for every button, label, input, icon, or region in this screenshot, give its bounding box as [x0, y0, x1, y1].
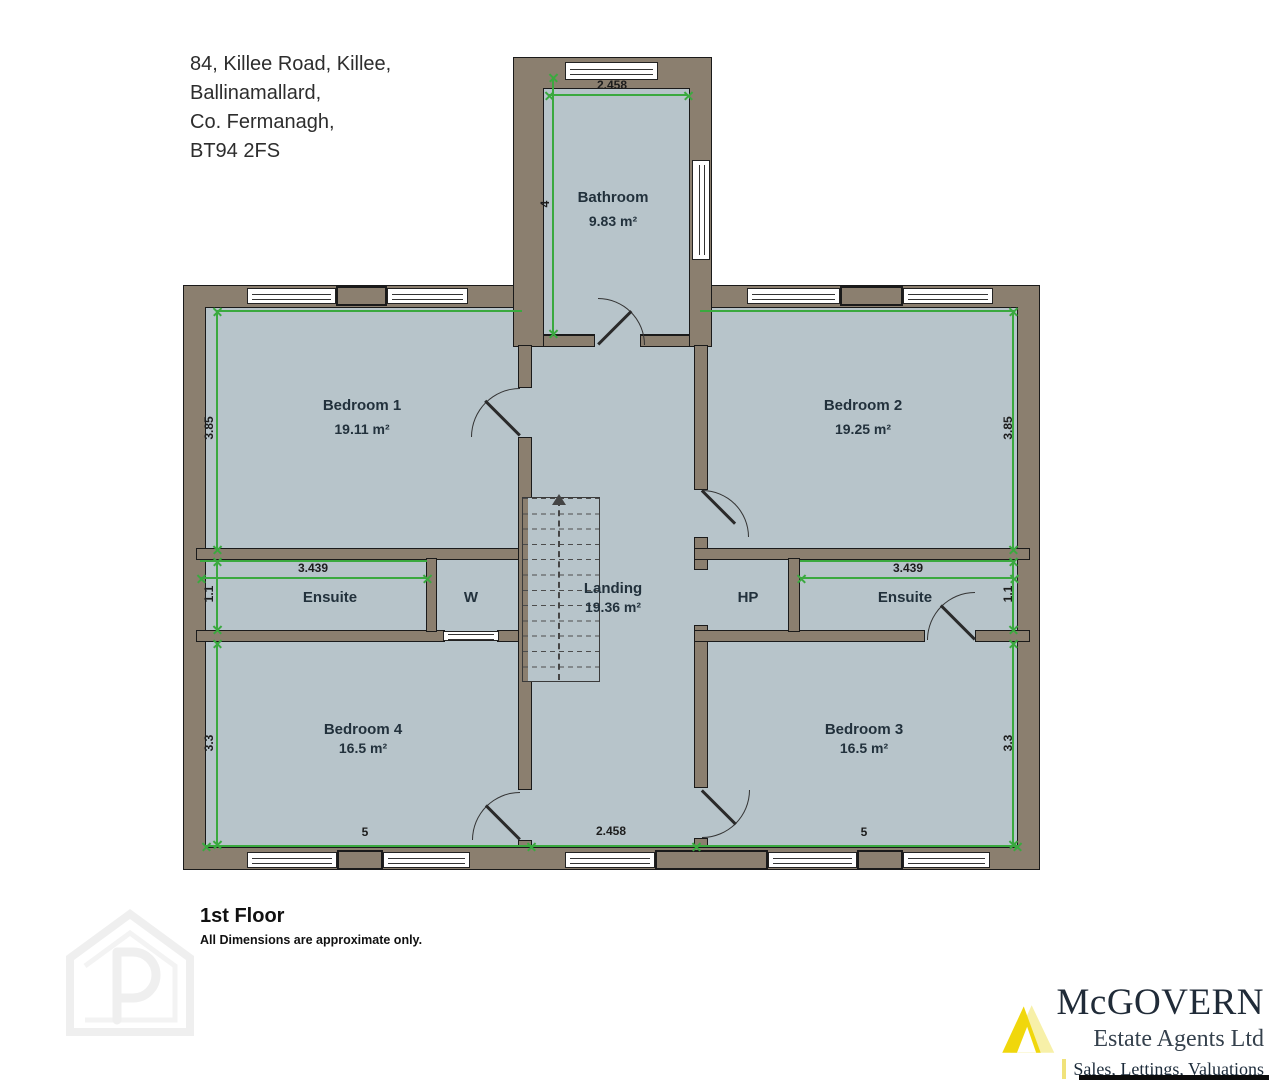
dim-line-bathroom-width [549, 94, 688, 96]
staircase-up-arrow-icon [552, 494, 566, 505]
property-address: 84, Killee Road, Killee, Ballinamallard,… [190, 50, 391, 166]
dim-marker [796, 573, 807, 584]
bathroom-label: Bathroom 9.83 m² [578, 190, 649, 228]
bedroom3-window-2 [903, 852, 990, 868]
room-name: Ensuite [303, 590, 357, 605]
dim-marker [212, 638, 223, 649]
landing-window-pier [655, 850, 768, 870]
bedroom3-window-pier [857, 850, 903, 870]
address-line-2: Ballinamallard, [190, 79, 391, 108]
bedroom4-window-2 [383, 852, 470, 868]
dim-line-ensuite-left-depth [216, 560, 218, 630]
dim-label-ensuite-right-width: 3.439 [893, 562, 923, 574]
dim-label-ensuite-left-width: 3.439 [298, 562, 328, 574]
dim-label-bedroom1-depth: 3.85 [203, 416, 215, 439]
room-name: Landing [584, 581, 642, 596]
room-area: 19.36 m² [584, 600, 642, 614]
dim-marker [201, 841, 212, 852]
room-area: 9.83 m² [578, 214, 649, 228]
logo-subtitle: Estate Agents Ltd [1057, 1026, 1264, 1053]
bedroom2-label: Bedroom 2 19.25 m² [824, 398, 902, 436]
dimensions-disclaimer: All Dimensions are approximate only. [200, 933, 422, 947]
address-line-1: 84, Killee Road, Killee, [190, 50, 391, 79]
dim-marker [422, 573, 433, 584]
dim-marker [548, 328, 559, 339]
dim-marker [196, 573, 207, 584]
bedroom1-window-pier [336, 286, 387, 306]
dim-marker [1008, 638, 1019, 649]
dim-marker [1009, 573, 1020, 584]
dim-marker [544, 90, 555, 101]
dim-marker [212, 839, 223, 850]
bedroom3-window-1 [768, 852, 857, 868]
address-line-3: Co. Fermanagh, [190, 108, 391, 137]
dim-label-bedroom4-width: 5 [362, 826, 369, 838]
bathroom-window-right [692, 160, 710, 260]
dim-label-bedroom4-depth: 3.3 [203, 735, 215, 752]
wall-ensuite-wardrobe-divider [426, 558, 437, 632]
wall-ensuite-bedroom3-right [975, 630, 1030, 642]
address-line-4: BT94 2FS [190, 137, 391, 166]
dim-label-hall-width: 2.458 [596, 825, 626, 837]
room-name: Bedroom 3 [825, 722, 903, 737]
bedroom4-window-pier [337, 850, 383, 870]
bathroom-bottom-wall-right [640, 335, 690, 347]
bedroom1-label: Bedroom 1 19.11 m² [323, 398, 401, 436]
floor-title: 1st Floor [200, 905, 284, 928]
bedroom1-window-1 [247, 288, 336, 304]
room-name: W [464, 590, 478, 605]
wardrobe-opening [443, 631, 499, 641]
room-name: Bathroom [578, 190, 649, 205]
wall-landing-right-3 [694, 625, 708, 788]
staircase-direction-line [558, 500, 560, 680]
room-area: 19.25 m² [824, 422, 902, 436]
dim-marker [1012, 841, 1023, 852]
dim-marker [1008, 556, 1019, 567]
room-area: 16.5 m² [825, 741, 903, 755]
floorplan-page: 84, Killee Road, Killee, Ballinamallard,… [0, 0, 1269, 1080]
ensuite-left-label: Ensuite [303, 590, 357, 605]
dim-label-bedroom2-depth: 3.85 [1002, 416, 1014, 439]
dim-marker [1008, 544, 1019, 555]
dim-line-bedroom1-depth [216, 310, 218, 550]
landing-label: Landing 19.36 m² [584, 581, 642, 614]
wall-landing-left-1 [518, 345, 532, 388]
wall-hp-ensuite-divider [788, 558, 800, 632]
dim-label-ensuite-right-depth: 1.1 [1002, 586, 1014, 603]
logo-name: McGOVERN [1057, 983, 1264, 1024]
dim-line-bottom-width [205, 845, 1018, 847]
wall-hp-bedroom3-left [694, 630, 925, 642]
room-area: 16.5 m² [324, 741, 402, 755]
bedroom2-window-1 [747, 288, 840, 304]
bedroom3-label: Bedroom 3 16.5 m² [825, 722, 903, 755]
room-name: Ensuite [878, 590, 932, 605]
room-name: HP [738, 590, 759, 605]
wall-bedroom1-ensuite [196, 548, 530, 560]
dim-marker [212, 306, 223, 317]
mcgovern-logo-mark [1000, 983, 1057, 1075]
dim-marker [1008, 306, 1019, 317]
wardrobe-label: W [464, 590, 478, 605]
ensuite-right-label: Ensuite [878, 590, 932, 605]
dim-line-ensuite-right-width [800, 577, 1014, 579]
dim-line-bedroom2-top [700, 310, 1014, 312]
bedroom1-window-2 [387, 288, 468, 304]
wall-ensuite-bedroom4-left [196, 630, 445, 642]
dim-marker [212, 544, 223, 555]
dim-line-bedroom1-top [216, 310, 522, 312]
bedroom2-window-2 [903, 288, 993, 304]
dim-line-ensuite-left-width [200, 577, 427, 579]
room-name: Bedroom 2 [824, 398, 902, 413]
bedroom4-label: Bedroom 4 16.5 m² [324, 722, 402, 755]
dim-label-bathroom-width: 2.458 [597, 79, 627, 91]
bedroom4-window-1 [247, 852, 337, 868]
dim-label-bedroom3-width: 5 [861, 826, 868, 838]
dim-marker [526, 841, 537, 852]
dim-marker [548, 72, 559, 83]
dim-label-bathroom-depth: 4 [539, 201, 551, 208]
dim-marker [212, 556, 223, 567]
dim-marker [1008, 624, 1019, 635]
bottom-edge-bar [1079, 1075, 1269, 1080]
dim-line-bedroom4-depth [216, 642, 218, 845]
room-name: Bedroom 4 [324, 722, 402, 737]
estate-agent-logo: McGOVERN Estate Agents Ltd Sales, Lettin… [1000, 983, 1264, 1080]
hotpress-label: HP [738, 590, 759, 605]
room-name: Bedroom 1 [323, 398, 401, 413]
dim-marker [683, 90, 694, 101]
logo-tagline-bar [1062, 1059, 1066, 1079]
wall-landing-right-1 [694, 345, 708, 490]
dim-label-bedroom3-depth: 3.3 [1002, 735, 1014, 752]
wall-bedroom2-hp [694, 548, 1030, 560]
room-area: 19.11 m² [323, 422, 401, 436]
dim-line-bathroom-depth [552, 77, 554, 333]
bedroom2-window-pier [840, 286, 903, 306]
watermark-house-icon [55, 900, 205, 1045]
dim-label-ensuite-left-depth: 1.1 [203, 586, 215, 603]
dim-marker [212, 624, 223, 635]
landing-window [565, 852, 655, 868]
dim-marker [691, 841, 702, 852]
